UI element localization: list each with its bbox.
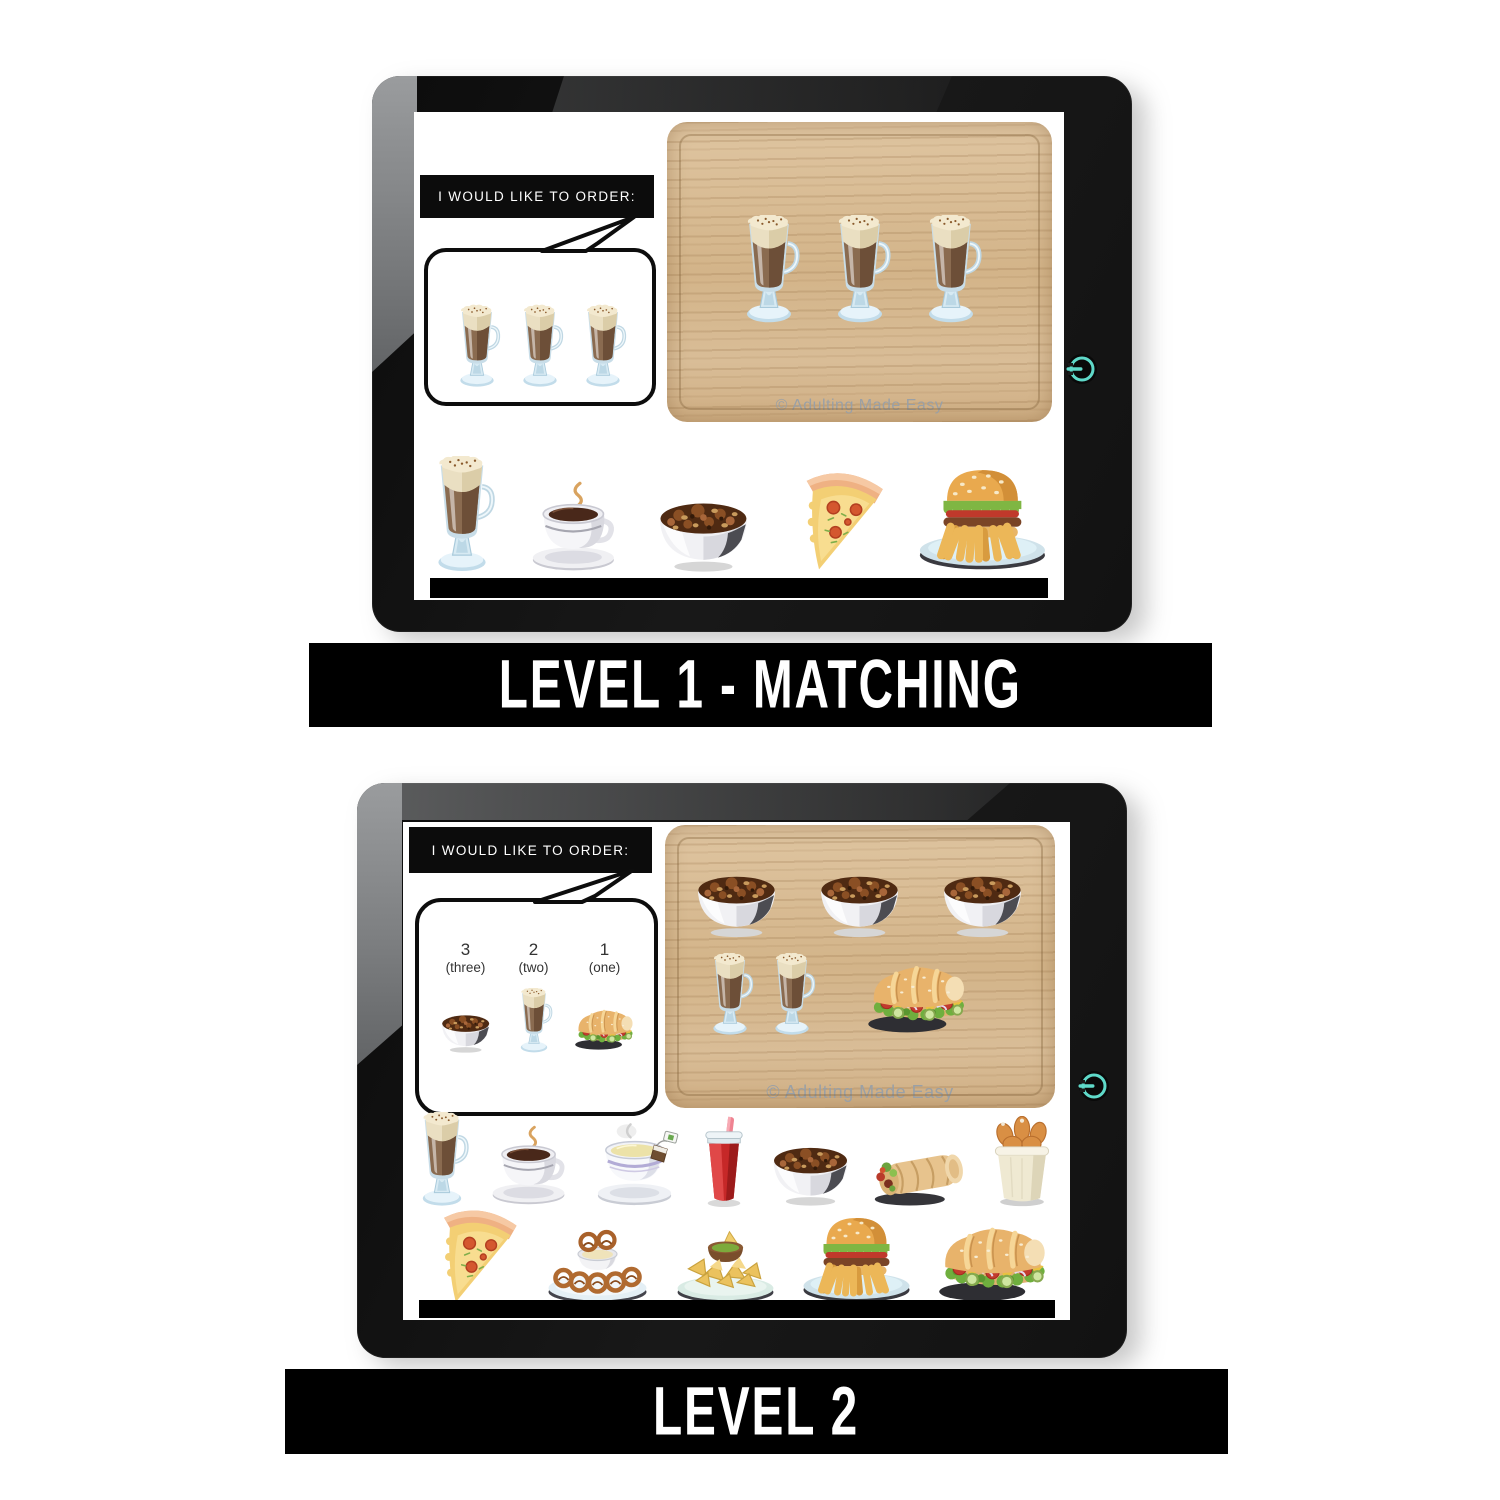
sub-sandwich-icon[interactable] (863, 959, 973, 1037)
bezel-glare-left (372, 76, 417, 372)
reflection-bar (419, 1300, 1055, 1318)
watermark: © Adulting Made Easy (667, 397, 1052, 415)
level2-banner: LEVEL 2 (285, 1369, 1228, 1454)
tray-items (665, 825, 1055, 1108)
soda-icon[interactable] (695, 1116, 753, 1208)
power-icon (1065, 352, 1099, 386)
stew-bowl-icon[interactable] (690, 865, 784, 939)
stew-bowl-icon[interactable] (813, 865, 907, 939)
sub-sandwich-icon[interactable] (930, 1220, 1058, 1300)
speech-bubble-content: 3(three)2(two)1(one) (419, 902, 654, 1112)
tablet-mockup-level1: I WOULD LIKE TO ORDER: © Adulting Made E… (372, 76, 1132, 632)
power-icon (1077, 1069, 1111, 1103)
burrito-icon[interactable] (869, 1138, 971, 1208)
screen-reflection (403, 1300, 1070, 1320)
bubble-item: 3(three) (437, 940, 495, 1054)
app-screen-level2: I WOULD LIKE TO ORDER: 3(three)2(two)1(o… (403, 822, 1070, 1300)
app-screen-level1: I WOULD LIKE TO ORDER: © Adulting Made E… (414, 112, 1064, 578)
burger-fries-icon[interactable] (791, 1206, 923, 1300)
menu-row (403, 1206, 1070, 1300)
speech-bubble-tail (535, 868, 647, 904)
nachos-icon[interactable] (667, 1218, 785, 1300)
tablet-mockup-level2: I WOULD LIKE TO ORDER: 3(three)2(two)1(o… (357, 783, 1127, 1358)
stew-bowl-icon (437, 1008, 495, 1054)
latte-icon (514, 988, 554, 1054)
level1-banner: LEVEL 1 - MATCHING (309, 643, 1212, 727)
tray-row (665, 825, 1055, 939)
bubble-item: 2(two) (514, 940, 554, 1054)
menu-row (403, 1112, 1070, 1208)
bezel-glare-left (357, 783, 402, 1065)
order-title: I WOULD LIKE TO ORDER: (432, 843, 630, 858)
tray-items (667, 122, 1052, 422)
level1-banner-label: LEVEL 1 - MATCHING (499, 645, 1022, 724)
bubble-item: 1(one) (573, 940, 637, 1054)
pretzel-dip-icon[interactable] (536, 1220, 660, 1300)
bubble-food (452, 301, 502, 393)
speech-bubble (424, 248, 656, 406)
order-title-bar: I WOULD LIKE TO ORDER: (409, 827, 652, 873)
bubble-item (515, 301, 565, 393)
stew-bowl-icon[interactable] (766, 1136, 856, 1208)
stew-bowl-icon[interactable] (936, 865, 1030, 939)
stew-bowl-icon[interactable] (651, 490, 757, 574)
order-title-bar: I WOULD LIKE TO ORDER: (420, 175, 654, 218)
quantity-word: (one) (589, 960, 621, 975)
bubble-food (514, 984, 554, 1054)
tray-row (667, 122, 1052, 325)
order-title: I WOULD LIKE TO ORDER: (438, 189, 636, 204)
sub-sandwich-icon (573, 1004, 637, 1054)
burger-fries-icon[interactable] (914, 456, 1052, 574)
tray-row (665, 953, 1055, 1037)
latte-icon (515, 301, 565, 393)
latte-icon[interactable] (824, 215, 896, 325)
reflection-bar (430, 578, 1048, 598)
bezel-glare-top (402, 783, 1010, 820)
speech-bubble: 3(three)2(two)1(one) (415, 898, 658, 1116)
latte-icon[interactable] (733, 215, 805, 325)
coffee-icon[interactable] (523, 478, 627, 574)
food-tray: © Adulting Made Easy (667, 122, 1052, 422)
latte-icon[interactable] (413, 1112, 471, 1208)
bubble-food (573, 984, 637, 1054)
latte-icon[interactable] (767, 953, 817, 1037)
tea-icon[interactable] (589, 1120, 683, 1208)
latte-icon[interactable] (426, 456, 498, 574)
screen-reflection (414, 578, 1064, 600)
pizza-icon[interactable] (782, 468, 890, 574)
chicken-bucket-icon[interactable] (984, 1116, 1060, 1208)
quantity-word: (three) (446, 960, 486, 975)
quantity-number: 1 (600, 940, 609, 960)
bubble-food (578, 301, 628, 393)
bubble-item (578, 301, 628, 393)
coffee-icon[interactable] (484, 1122, 576, 1208)
speech-bubble-content (428, 252, 652, 402)
bubble-item (452, 301, 502, 393)
quantity-number: 2 (529, 940, 538, 960)
latte-icon (452, 301, 502, 393)
quantity-word: (two) (519, 960, 549, 975)
bezel-glare-top (552, 76, 952, 113)
food-tray: © Adulting Made Easy (665, 825, 1055, 1108)
pizza-icon[interactable] (415, 1206, 529, 1300)
bubble-food (515, 301, 565, 393)
watermark: © Adulting Made Easy (665, 1082, 1055, 1103)
bubble-food (437, 984, 495, 1054)
level2-banner-label: LEVEL 2 (653, 1372, 859, 1451)
latte-icon (578, 301, 628, 393)
menu-items (414, 456, 1064, 578)
latte-icon[interactable] (705, 953, 755, 1037)
quantity-number: 3 (461, 940, 470, 960)
latte-icon[interactable] (915, 215, 987, 325)
menu-row (414, 456, 1064, 574)
speech-bubble-tail (542, 213, 652, 253)
